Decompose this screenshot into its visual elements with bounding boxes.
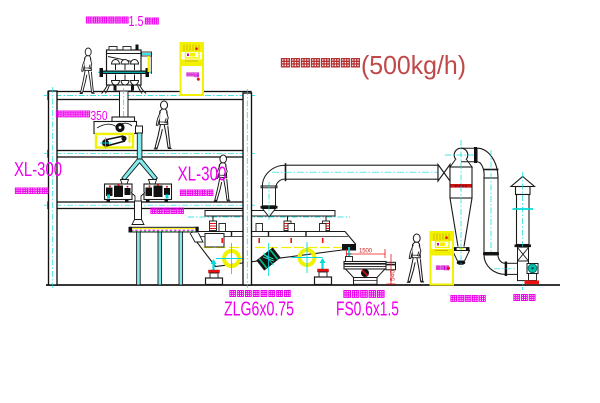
- svg-text:XL-300: XL-300: [178, 164, 227, 186]
- svg-text:1.5: 1.5: [129, 14, 144, 30]
- svg-text:ZLG6x0.75: ZLG6x0.75: [224, 299, 294, 321]
- svg-text:540: 540: [390, 270, 397, 281]
- svg-text:(500kg/h): (500kg/h): [361, 50, 466, 80]
- svg-text:XL-300: XL-300: [14, 159, 62, 181]
- svg-text:FS0.6x1.5: FS0.6x1.5: [336, 299, 399, 321]
- svg-text:1500: 1500: [359, 249, 373, 255]
- svg-text:350: 350: [91, 108, 108, 123]
